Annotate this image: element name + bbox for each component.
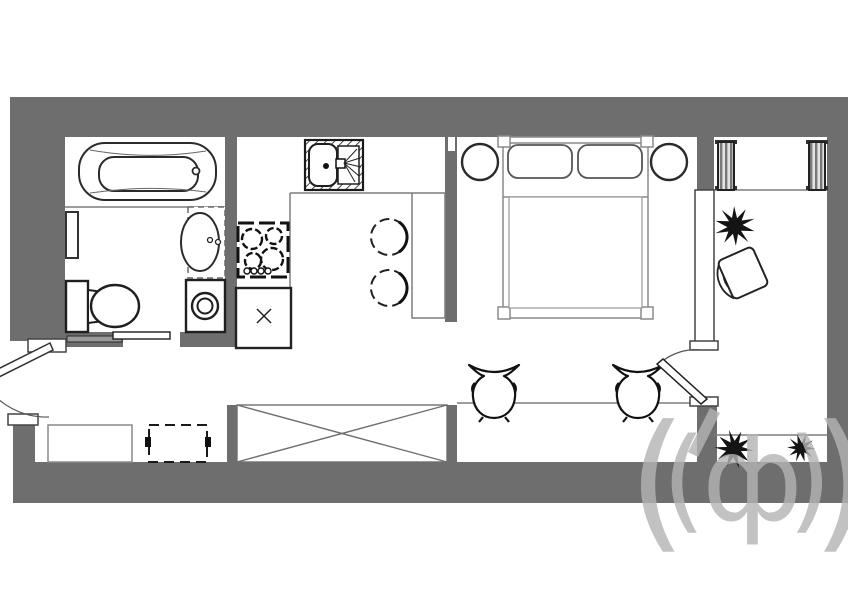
wall-junction-notch [448, 137, 455, 151]
pillow [578, 145, 642, 178]
radiator [715, 140, 737, 190]
washing-machine [186, 280, 225, 332]
wall-stub-balcony-top [697, 137, 714, 190]
toilet [66, 281, 139, 332]
bed-post [641, 307, 653, 319]
bed-post [498, 307, 510, 319]
door-jamb [690, 341, 718, 350]
wall-kitchen-bedroom [445, 137, 457, 322]
nightstand [651, 144, 687, 180]
wall-radiator [66, 212, 78, 258]
bathtub [79, 143, 216, 200]
cooktop [238, 223, 288, 277]
drain-dot [323, 163, 329, 169]
wall-top [10, 97, 848, 137]
base-cabinet [236, 288, 291, 348]
wall-left [10, 97, 65, 341]
watermark-logo: ( ( ф ) ) [628, 394, 848, 568]
headboard [503, 137, 648, 143]
faucet [336, 159, 345, 168]
kitchen-sink [305, 140, 363, 190]
nightstand [462, 144, 498, 180]
bed-post [498, 136, 510, 147]
mattress [509, 197, 642, 308]
faucet-dot [216, 240, 221, 245]
faucet-dot [208, 238, 213, 243]
wall-stub-wardrobe-left [227, 405, 237, 462]
floor-plan-drawing: ( ( ф ) ) [0, 0, 848, 600]
wall-stub-wardrobe-right [447, 405, 457, 462]
wall-bathroom-bottom-right [180, 332, 237, 347]
wall-left-lower [13, 421, 35, 466]
pillow [508, 145, 572, 178]
watermark-paren: ) [812, 394, 848, 568]
radiator [806, 140, 828, 190]
hall-bench [48, 425, 132, 462]
wardrobe [237, 405, 447, 462]
pedestal-sink [181, 207, 225, 278]
watermark-paren: ( [662, 415, 706, 545]
floor-plan: ( ( ф ) ) [0, 0, 848, 600]
bed-post [641, 136, 653, 147]
kitchen-table [412, 193, 445, 318]
double-bed [498, 136, 653, 319]
